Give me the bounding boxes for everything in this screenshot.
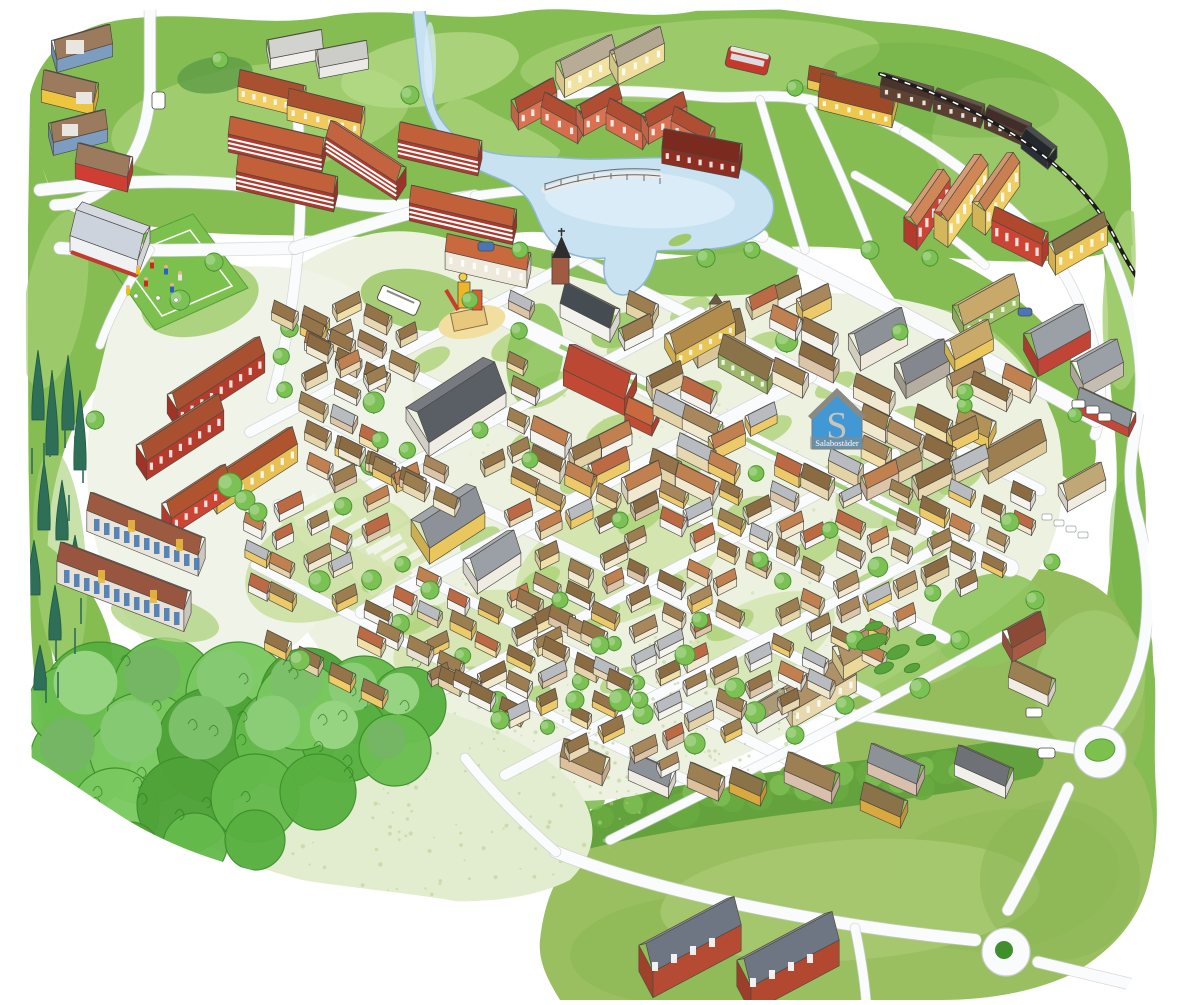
svg-text:Salabostäder: Salabostäder bbox=[815, 438, 859, 448]
